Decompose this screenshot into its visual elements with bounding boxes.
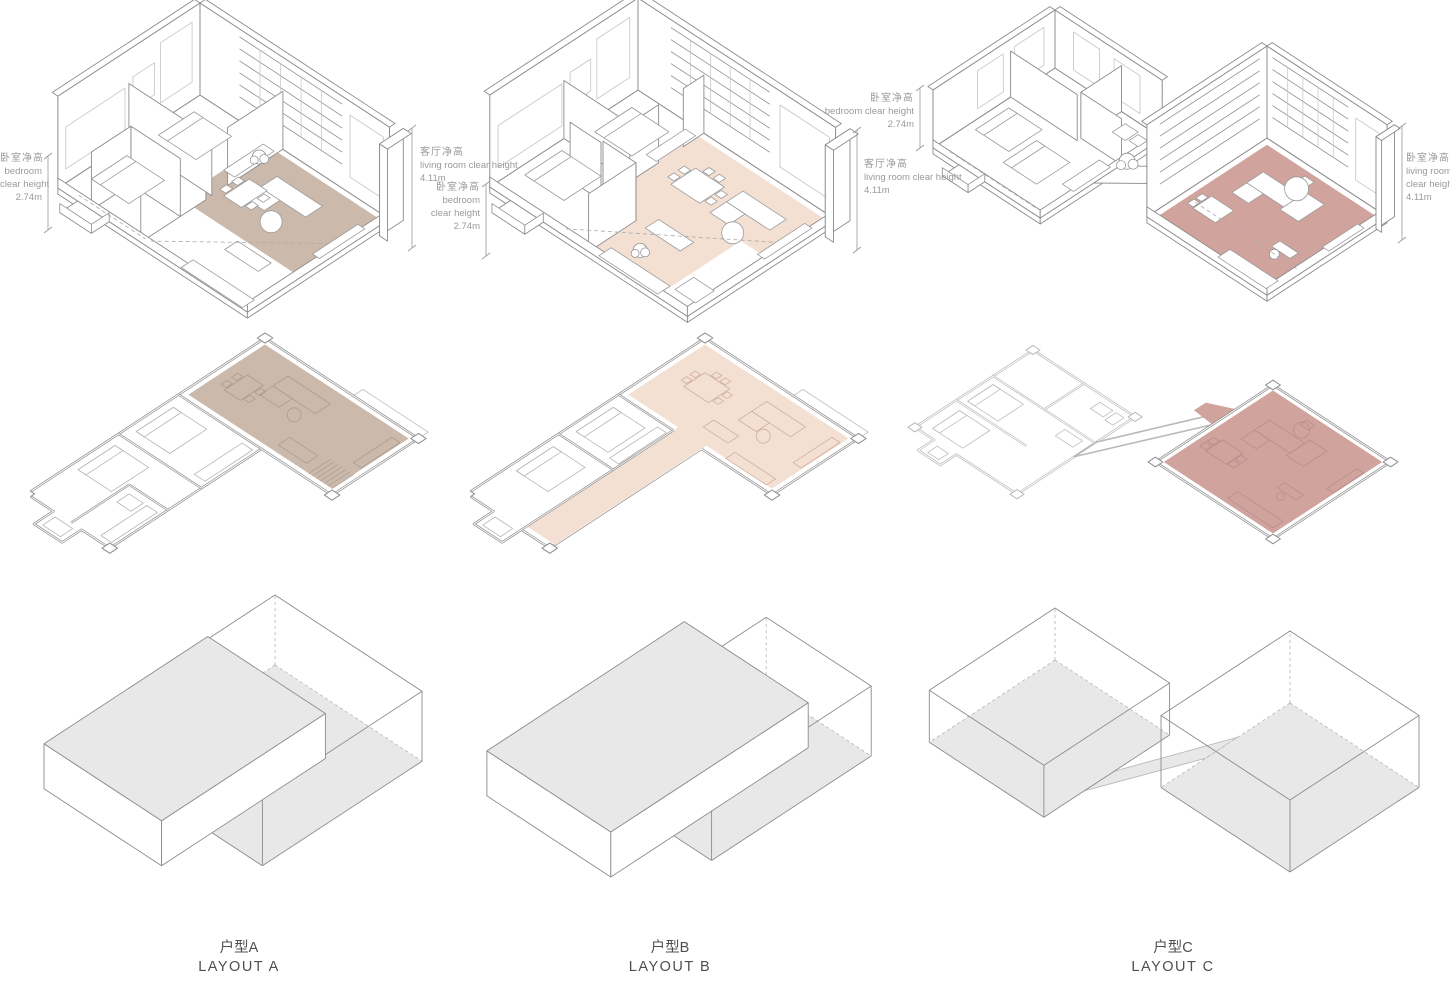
annotation-living-height-c: 卧室净高 living room clear height 4.11m (1406, 152, 1450, 204)
annotation-en-text: living room (1406, 165, 1450, 178)
annotation-en-text: clear height (398, 207, 480, 220)
annotation-cn-text: 客厅净高 (420, 146, 532, 159)
label-layout-a: 户型A LAYOUT A (154, 940, 324, 975)
annotation-living-height-a: 客厅净高 living room clear height 4.11m (420, 146, 532, 185)
layout-name-en: LAYOUT B (585, 959, 755, 975)
annotation-value: 2.74m (0, 191, 42, 204)
layout-name-cn: 户型A (154, 940, 324, 956)
label-layout-b: 户型B LAYOUT B (585, 940, 755, 975)
layout-name-en: LAYOUT C (1088, 959, 1258, 975)
annotation-en-text: clear height (0, 178, 42, 191)
architectural-sheet: 卧室净高 bedroom clear height 2.74m 客厅净高 liv… (0, 0, 1450, 1000)
annotation-cn-text: 卧室净高 (0, 152, 42, 165)
annotation-en-text: clear height (1406, 178, 1450, 191)
layout-name-cn: 户型C (1088, 940, 1258, 956)
annotation-cn-text: 卧室净高 (398, 181, 480, 194)
annotation-cn-text: 卧室净高 (1406, 152, 1450, 165)
annotation-en-text: bedroom (398, 194, 480, 207)
layout-name-cn: 户型B (585, 940, 755, 956)
annotation-value: 4.11m (1406, 191, 1450, 204)
annotation-en-text: living room clear height (420, 159, 532, 172)
annotation-value: 4.11m (864, 184, 976, 197)
annotation-en-text: living room clear height (864, 171, 976, 184)
annotation-bedroom-height-c: 卧室净高 bedroom clear height 2.74m (822, 92, 914, 131)
annotation-value: 2.74m (398, 220, 480, 233)
annotation-cn-text: 客厅净高 (864, 158, 976, 171)
annotation-bedroom-height-a: 卧室净高 bedroom clear height 2.74m (0, 152, 42, 204)
annotation-cn-text: 卧室净高 (822, 92, 914, 105)
annotation-bedroom-height-b: 卧室净高 bedroom clear height 2.74m (398, 181, 480, 233)
drawing-lines (44, 85, 1406, 259)
annotation-living-height-b: 客厅净高 living room clear height 4.11m (864, 158, 976, 197)
label-layout-c: 户型C LAYOUT C (1088, 940, 1258, 975)
annotation-en-text: bedroom clear height (822, 105, 914, 118)
annotation-en-text: bedroom (0, 165, 42, 178)
layout-name-en: LAYOUT A (154, 959, 324, 975)
dimension-lines (0, 0, 1450, 1000)
annotation-value: 2.74m (822, 118, 914, 131)
